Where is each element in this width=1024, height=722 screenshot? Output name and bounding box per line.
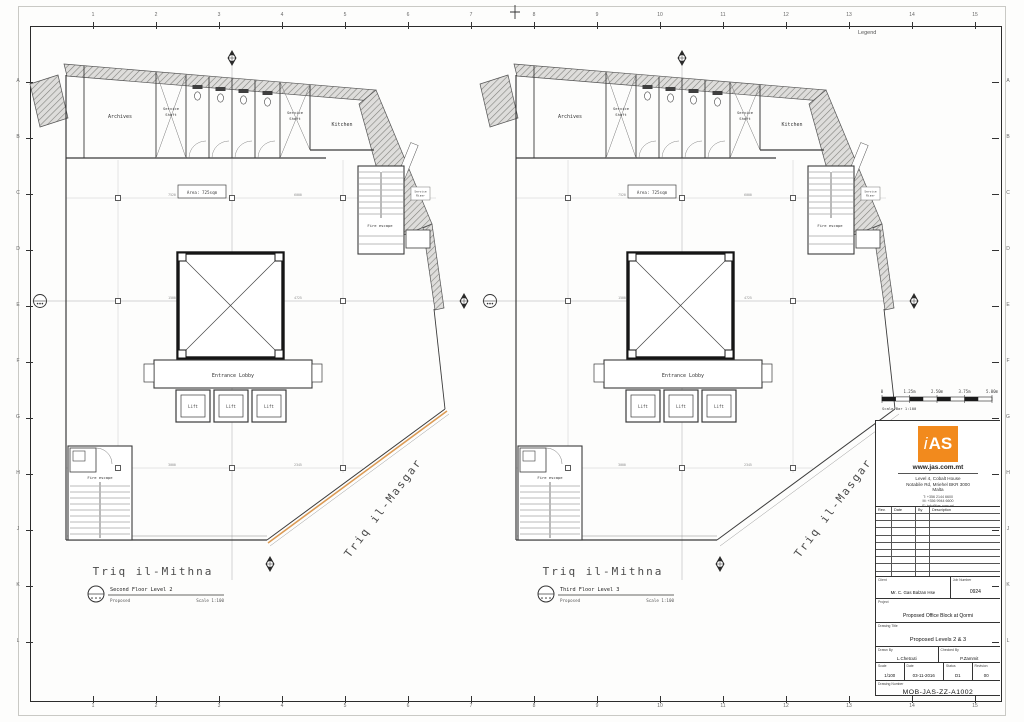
border-tick-label: 6 — [403, 703, 413, 709]
border-tick — [26, 82, 33, 83]
border-tick — [345, 22, 346, 29]
border-tick — [849, 22, 850, 29]
central-shaft — [178, 253, 283, 358]
street-label-mithna: Triq il-Mithna — [93, 565, 214, 578]
svg-text:3000: 3000 — [168, 463, 176, 467]
project-row: Project Proposed Office Block at Qormi — [876, 599, 1000, 623]
revision-table: Rev. Date By Description — [876, 507, 1000, 577]
revision-value: 00 — [973, 673, 1001, 678]
border-tick-label: G — [13, 414, 23, 420]
border-tick — [723, 696, 724, 703]
border-tick — [219, 22, 220, 29]
border-tick-label: E — [1003, 302, 1013, 308]
border-tick — [660, 22, 661, 29]
border-tick-label: 11 — [718, 12, 728, 18]
drawing-sheet: Legend — [0, 0, 1024, 722]
border-tick-label: 3 — [214, 12, 224, 18]
border-tick-label: H — [1003, 470, 1013, 476]
border-tick — [26, 530, 33, 531]
border-tick-label: B — [1003, 134, 1013, 140]
border-tick-label: 3 — [214, 703, 224, 709]
room-label-kitchen: Kitchen — [781, 122, 802, 128]
legend-label: Legend — [858, 30, 876, 36]
central-shaft — [628, 253, 733, 358]
job-number-value: 0924 — [951, 589, 1000, 595]
border-tick-label: A — [13, 78, 23, 84]
room-label-archives: Archives — [558, 114, 582, 120]
border-tick-label: 10 — [655, 12, 665, 18]
border-tick-label: 6 — [403, 12, 413, 18]
border-tick — [660, 696, 661, 703]
compass-icon — [910, 293, 919, 309]
plan-title-bubble: Second Floor Level 2 Proposed Scale 1:10… — [88, 586, 224, 603]
title-block: iAS www.jas.com.mt Level 4, Cobalt House… — [875, 420, 1000, 696]
svg-text:5.00m: 5.00m — [986, 389, 999, 394]
border-tick — [26, 474, 33, 475]
svg-text:Riser: Riser — [416, 194, 425, 198]
svg-text:1500: 1500 — [618, 296, 626, 300]
border-tick — [26, 194, 33, 195]
border-tick-label: 1 — [88, 12, 98, 18]
border-tick-label: K — [13, 582, 23, 588]
border-tick-label: 14 — [907, 12, 917, 18]
revision-row — [876, 521, 1000, 528]
border-tick — [992, 530, 999, 531]
border-tick — [912, 696, 913, 703]
scale-value: 1/100 — [876, 673, 904, 678]
svg-text:4725: 4725 — [294, 296, 302, 300]
border-tick-label: J — [1003, 526, 1013, 532]
svg-text:1.25m: 1.25m — [903, 389, 916, 394]
border-tick-label: 4 — [277, 703, 287, 709]
svg-text:1500: 1500 — [168, 296, 176, 300]
border-tick-label: 12 — [781, 12, 791, 18]
svg-text:Area: 725sqm: Area: 725sqm — [637, 190, 668, 195]
compass-icon — [460, 293, 469, 309]
border-tick — [992, 586, 999, 587]
client-row: Client Mr. C. Gas Balzan Hse Job Number … — [876, 577, 1000, 599]
lift-label: Lift — [638, 404, 648, 409]
border-tick — [26, 418, 33, 419]
company-address: Level 4, Cobalt House Notabile Rd, Mrieh… — [876, 476, 1000, 493]
svg-text:6000: 6000 — [744, 193, 752, 197]
drawing-title-row: Drawing Title Proposed Levels 2 & 3 — [876, 623, 1000, 647]
border-tick — [992, 194, 999, 195]
plan-status: Proposed — [560, 598, 581, 603]
border-tick-label: 5 — [340, 12, 350, 18]
border-tick-label: 8 — [529, 703, 539, 709]
border-tick — [786, 696, 787, 703]
street-label-masgar: Triq il-Masgar — [792, 456, 875, 560]
svg-text:Shaft: Shaft — [289, 116, 300, 121]
company-logo: iAS — [918, 426, 958, 462]
border-tick-label: A — [1003, 78, 1013, 84]
survey-marker-icon — [34, 295, 47, 308]
border-tick-label: C — [1003, 190, 1013, 196]
svg-text:Area: 725sqm: Area: 725sqm — [187, 190, 218, 195]
border-tick — [975, 696, 976, 703]
border-tick-label: 9 — [592, 703, 602, 709]
border-tick — [597, 696, 598, 703]
border-tick — [723, 22, 724, 29]
border-tick-label: F — [13, 358, 23, 364]
lift-label: Lift — [264, 404, 274, 409]
border-tick-label: 4 — [277, 12, 287, 18]
plan-scale: Scale 1:100 — [196, 598, 224, 603]
compass-icon — [228, 50, 237, 66]
border-tick — [992, 138, 999, 139]
border-tick — [345, 696, 346, 703]
svg-text:Shaft: Shaft — [615, 112, 626, 117]
svg-text:3.75m: 3.75m — [958, 389, 971, 394]
border-tick — [408, 22, 409, 29]
revision-rows — [876, 514, 1000, 577]
service-riser: Service Riser — [861, 187, 880, 200]
border-tick — [408, 696, 409, 703]
plan-title: Third Floor Level 3 — [560, 587, 619, 593]
svg-text:6000: 6000 — [294, 193, 302, 197]
room-label-service-shaft-2: Service — [287, 110, 304, 115]
border-tick-label: 10 — [655, 703, 665, 709]
floor-plan: Archives Service Shaft Service Shaft Kit… — [28, 48, 473, 618]
compass-icon — [266, 556, 275, 572]
entrance-lobby-label: Entrance Lobby — [212, 373, 254, 379]
scale-bar-caption: Scale Bar 1:100 — [882, 406, 917, 411]
revision-row — [876, 557, 1000, 564]
lift-label: Lift — [714, 404, 724, 409]
border-tick-label: K — [1003, 582, 1013, 588]
street-label-masgar: Triq il-Masgar — [342, 456, 425, 560]
fire-escape-lower — [518, 446, 582, 540]
border-tick-label: D — [1003, 246, 1013, 252]
svg-text:3000: 3000 — [618, 463, 626, 467]
border-tick — [849, 696, 850, 703]
lift-label: Lift — [676, 404, 686, 409]
border-tick-label: 14 — [907, 703, 917, 709]
title-block-identity: iAS www.jas.com.mt Level 4, Cobalt House… — [876, 421, 1000, 507]
revision-row — [876, 514, 1000, 521]
border-tick-label: J — [13, 526, 23, 532]
revision-row — [876, 536, 1000, 543]
border-tick-label: 1 — [88, 703, 98, 709]
drawn-checked-row: Drawn ByL.Chetcuti Checked ByP.Zammit — [876, 647, 1000, 663]
border-tick — [26, 250, 33, 251]
border-tick-label: F — [1003, 358, 1013, 364]
border-tick-label: C — [13, 190, 23, 196]
border-tick-label: 5 — [340, 703, 350, 709]
room-label-service-shaft-1: Service — [163, 106, 180, 111]
svg-text:2345: 2345 — [744, 463, 752, 467]
client-value: Mr. C. Gas Balzan Hse — [876, 590, 950, 595]
room-label-kitchen: Kitchen — [331, 122, 352, 128]
status-value: D1 — [944, 673, 972, 678]
drawing-title-value: Proposed Levels 2 & 3 — [876, 637, 1000, 643]
border-tick-label: 11 — [718, 703, 728, 709]
border-tick — [26, 138, 33, 139]
border-tick — [992, 306, 999, 307]
border-tick-label: H — [13, 470, 23, 476]
border-tick-label: 15 — [970, 12, 980, 18]
street-label-mithna: Triq il-Mithna — [543, 565, 664, 578]
border-tick — [786, 22, 787, 29]
drawing-number-value: MOB-JAS-ZZ-A1002 — [876, 689, 1000, 696]
border-tick — [471, 696, 472, 703]
border-tick — [992, 418, 999, 419]
svg-text:7520: 7520 — [618, 193, 626, 197]
svg-text:4725: 4725 — [744, 296, 752, 300]
border-tick — [992, 82, 999, 83]
border-tick-label: 2 — [151, 703, 161, 709]
compass-icon — [716, 556, 725, 572]
center-mark-icon — [509, 4, 521, 20]
project-value: Proposed Office Block at Qormi — [876, 613, 1000, 619]
neighbour-structure — [480, 75, 518, 127]
border-tick — [26, 642, 33, 643]
area-tag: Area: 725sqm — [628, 185, 676, 198]
lift-label: Lift — [226, 404, 236, 409]
border-tick — [975, 22, 976, 29]
neighbour-structure — [30, 75, 68, 127]
compass-icon — [678, 50, 687, 66]
fire-escape-upper-label: Fire escape — [817, 223, 843, 228]
border-tick — [992, 250, 999, 251]
svg-text:Shaft: Shaft — [739, 116, 750, 121]
plan-title-bubble: Third Floor Level 3 Proposed Scale 1:100 — [538, 586, 674, 603]
border-tick — [26, 586, 33, 587]
plan-scale: Scale 1:100 — [646, 598, 674, 603]
revision-row — [876, 550, 1000, 557]
border-tick-label: 7 — [466, 703, 476, 709]
border-tick-label: G — [1003, 414, 1013, 420]
revision-row — [876, 528, 1000, 535]
border-tick — [26, 306, 33, 307]
room-label-service-shaft-1: Service — [613, 106, 630, 111]
floor-plan: Archives Service Shaft Service Shaft Kit… — [478, 48, 923, 618]
border-tick — [156, 696, 157, 703]
border-tick — [992, 362, 999, 363]
border-tick-label: 12 — [781, 703, 791, 709]
entrance-lobby-label: Entrance Lobby — [662, 373, 704, 379]
floor-plan-level-3: Archives Service Shaft Service Shaft Kit… — [478, 48, 923, 618]
border-tick-label: 2 — [151, 12, 161, 18]
svg-text:Shaft: Shaft — [165, 112, 176, 117]
border-tick-label: 7 — [466, 12, 476, 18]
border-tick — [93, 696, 94, 703]
border-tick — [26, 362, 33, 363]
border-tick-label: 13 — [844, 12, 854, 18]
border-tick — [156, 22, 157, 29]
border-tick — [912, 22, 913, 29]
scale-bar-labels: 0 1.25m 2.50m 3.75m 5.00m — [881, 389, 999, 394]
border-tick-label: L — [13, 638, 23, 644]
room-label-service-shaft-2: Service — [737, 110, 754, 115]
company-website: www.jas.com.mt — [898, 464, 978, 474]
border-tick-label: 9 — [592, 12, 602, 18]
border-tick — [534, 22, 535, 29]
plan-status: Proposed — [110, 598, 131, 603]
fire-escape-upper-label: Fire escape — [367, 223, 393, 228]
revision-header: Rev. Date By Description — [876, 507, 1000, 514]
border-tick — [597, 22, 598, 29]
svg-text:Riser: Riser — [866, 194, 875, 198]
drawing-number-row: Drawing Number MOB-JAS-ZZ-A1002 — [876, 681, 1000, 697]
svg-text:2345: 2345 — [294, 463, 302, 467]
survey-marker-icon — [484, 295, 497, 308]
revision-row — [876, 564, 1000, 571]
boundary-highlight-line — [268, 411, 447, 543]
border-tick-label: 8 — [529, 12, 539, 18]
border-tick — [992, 474, 999, 475]
border-tick-label: L — [1003, 638, 1013, 644]
floor-plan-level-2: Archives Service Shaft Service Shaft Kit… — [28, 48, 473, 618]
company-contacts: T: +356 2144 6600 M: +356 9944 6600 E: i… — [876, 495, 1000, 507]
fire-escape-lower — [68, 446, 132, 540]
revision-row — [876, 543, 1000, 550]
fire-escape-lower-label: Fire escape — [87, 475, 113, 480]
svg-text:7520: 7520 — [168, 193, 176, 197]
room-label-archives: Archives — [108, 114, 132, 120]
scale-bar: 0 1.25m 2.50m 3.75m 5.00m Scale Bar 1:10… — [876, 386, 1000, 416]
svg-text:0: 0 — [881, 389, 884, 394]
border-tick-label: 13 — [844, 703, 854, 709]
date-value: 03-11-2016 — [905, 673, 944, 678]
lift-label: Lift — [188, 404, 198, 409]
svg-text:2.50m: 2.50m — [931, 389, 944, 394]
border-tick-label: 15 — [970, 703, 980, 709]
border-tick-label: B — [13, 134, 23, 140]
scale-date-row: Scale1/100 Date03-11-2016 StatusD1 Revis… — [876, 663, 1000, 681]
border-tick — [282, 22, 283, 29]
border-tick — [471, 22, 472, 29]
checked-by-value: P.Zammit — [939, 656, 1001, 661]
service-riser: Service Riser — [411, 187, 430, 200]
border-tick — [93, 22, 94, 29]
plan-title: Second Floor Level 2 — [110, 587, 172, 593]
border-tick — [219, 696, 220, 703]
fire-escape-lower-label: Fire escape — [537, 475, 563, 480]
border-tick — [282, 696, 283, 703]
drawn-by-value: L.Chetcuti — [876, 656, 938, 661]
area-tag: Area: 725sqm — [178, 185, 226, 198]
border-tick-label: D — [13, 246, 23, 252]
border-tick-label: E — [13, 302, 23, 308]
border-tick — [992, 642, 999, 643]
border-tick — [534, 696, 535, 703]
